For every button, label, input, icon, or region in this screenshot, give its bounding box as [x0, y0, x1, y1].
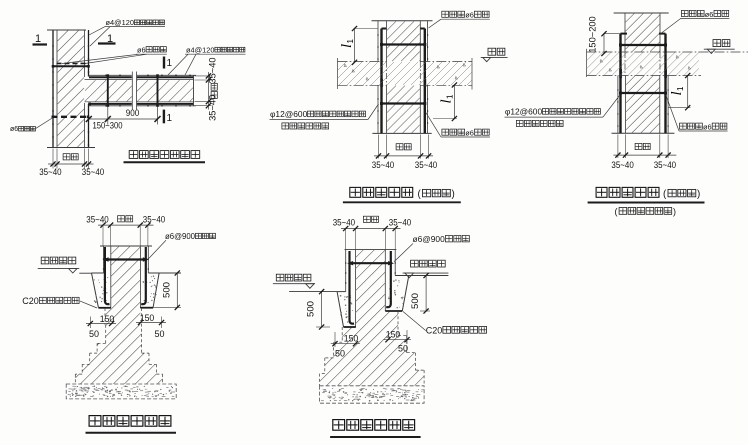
svg-text:1: 1 [35, 33, 41, 45]
svg-text:150: 150 [344, 334, 359, 345]
svg-text:150~200: 150~200 [588, 16, 598, 52]
svg-text:ø6: ø6 [703, 123, 712, 132]
svg-text:35~40: 35~40 [415, 160, 437, 170]
svg-text:): ) [697, 189, 700, 200]
svg-text:900: 900 [126, 108, 140, 119]
svg-text:500: 500 [162, 282, 173, 298]
svg-text:1: 1 [167, 58, 173, 69]
svg-text:35~40: 35~40 [82, 167, 104, 177]
svg-text:150~300: 150~300 [93, 121, 123, 131]
svg-text:35~40: 35~40 [372, 160, 394, 170]
svg-text:ø6: ø6 [137, 45, 146, 54]
svg-text:500: 500 [306, 301, 317, 317]
svg-text:50: 50 [335, 349, 345, 360]
svg-text:35~40: 35~40 [654, 160, 676, 170]
svg-text:35~40: 35~40 [39, 167, 61, 177]
svg-text:50: 50 [398, 344, 408, 355]
svg-text:ø4@120: ø4@120 [106, 18, 134, 27]
svg-text:(: ( [615, 207, 618, 217]
svg-text:1: 1 [167, 113, 173, 124]
svg-text:φ12@600: φ12@600 [270, 109, 308, 119]
svg-text:ø6@900: ø6@900 [413, 234, 446, 244]
svg-text:ø6: ø6 [705, 10, 714, 19]
svg-text:l: l [439, 99, 455, 103]
svg-text:35~40: 35~40 [611, 160, 633, 170]
svg-text:35~40: 35~40 [333, 217, 355, 227]
svg-text:ø6@900: ø6@900 [165, 232, 196, 241]
svg-text:1: 1 [676, 86, 685, 91]
svg-text:φ12@600: φ12@600 [505, 107, 543, 117]
svg-text:1: 1 [346, 39, 355, 44]
svg-text:C20: C20 [426, 326, 443, 336]
svg-text:ø6: ø6 [465, 129, 474, 138]
svg-text:35~40: 35~40 [208, 57, 218, 83]
svg-text:150: 150 [100, 314, 115, 325]
svg-text:35~40: 35~40 [143, 214, 165, 224]
svg-text:35~40: 35~40 [389, 217, 411, 227]
svg-text:l: l [339, 44, 355, 48]
svg-text:ø4@120: ø4@120 [186, 45, 214, 54]
svg-text:ø6: ø6 [465, 11, 474, 20]
svg-text:1: 1 [446, 94, 455, 99]
svg-text:ø6: ø6 [10, 126, 18, 133]
svg-text:50: 50 [89, 329, 99, 340]
svg-text:C20: C20 [22, 296, 39, 306]
svg-text:35~40: 35~40 [208, 95, 218, 121]
svg-text:): ) [452, 189, 455, 200]
svg-text:l: l [669, 91, 685, 95]
svg-text:500: 500 [410, 293, 421, 309]
svg-text:): ) [673, 207, 676, 217]
svg-text:50: 50 [155, 329, 165, 340]
